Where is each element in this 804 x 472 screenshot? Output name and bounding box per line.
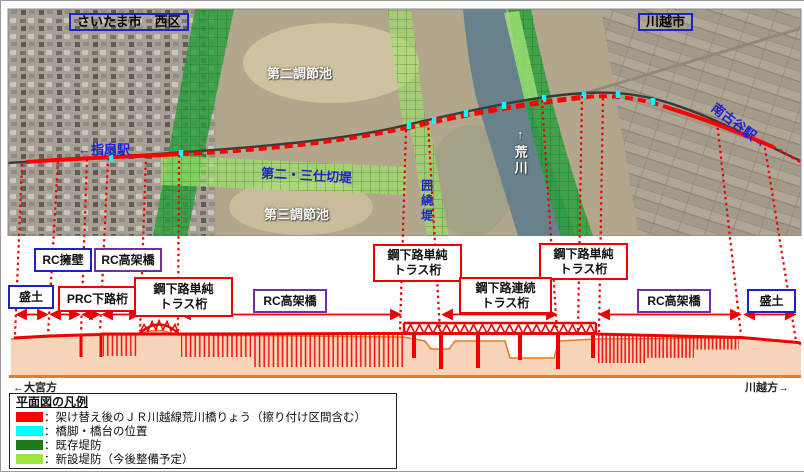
label-steel-simple-truss-1: 鋼下路単純 トラス桁 xyxy=(134,277,233,317)
pond2-label: 第二調節池 xyxy=(267,67,332,81)
legend-item: ：既存堤防 xyxy=(16,438,388,451)
label-rc-viaduct-2: RC高架橋 xyxy=(253,289,327,313)
label-rc-viaduct-1: RC高架橋 xyxy=(94,248,162,272)
legend-item: ：橋脚・橋台の位置 xyxy=(16,424,388,437)
label-rc-wall: RC擁壁 xyxy=(34,248,92,272)
aerial-photo xyxy=(8,9,804,237)
station-sashiogi-label: ←指扇駅 xyxy=(78,143,130,157)
legend-item: ：新設堤防（今後整備予定） xyxy=(16,452,388,465)
legend-title: 平面図の凡例 xyxy=(16,396,388,409)
main-truss-zigzag xyxy=(404,324,596,334)
legend-swatch-red xyxy=(16,412,43,422)
legend-swatch-darkgreen xyxy=(16,440,43,450)
pond3-label: 第三調節池 xyxy=(264,208,329,222)
legend-item: ：架け替え後のＪＲ川越線荒川橋りょう（擦り付け区間含む） xyxy=(16,410,388,423)
legend-swatch-cyan xyxy=(16,426,43,436)
bridge-plan-figure: さいたま市 西区 川越市 第二調節池 第三調節池 第二・三仕切堤 ←指扇駅 南古… xyxy=(0,0,804,472)
label-steel-simple-truss-3: 鋼下路単純 トラス桁 xyxy=(539,243,628,280)
legend-box: 平面図の凡例 ：架け替え後のＪＲ川越線荒川橋りょう（擦り付け区間含む） ：橋脚・… xyxy=(9,393,397,469)
direction-kawagoe: 川越方→ xyxy=(745,379,789,395)
label-rc-viaduct-3: RC高架橋 xyxy=(637,289,711,313)
river-label: ↑荒川 xyxy=(513,127,527,177)
label-steel-continuous-truss: 鋼下路連続 トラス桁 xyxy=(459,277,552,314)
label-prc-girder: PRC下路桁 xyxy=(58,286,137,312)
label-steel-simple-truss-2: 鋼下路単純 トラス桁 xyxy=(373,244,462,282)
city-label-saitama-nishi: さいたま市 西区 xyxy=(69,13,189,31)
city-label-kawagoe: 川越市 xyxy=(638,13,693,31)
legend-swatch-lightgreen xyxy=(16,454,43,464)
label-embankment-left: 盛土 xyxy=(8,285,54,309)
surrounding-levee-label: 囲繞堤 xyxy=(420,179,433,224)
label-embankment-right: 盛土 xyxy=(747,289,796,313)
